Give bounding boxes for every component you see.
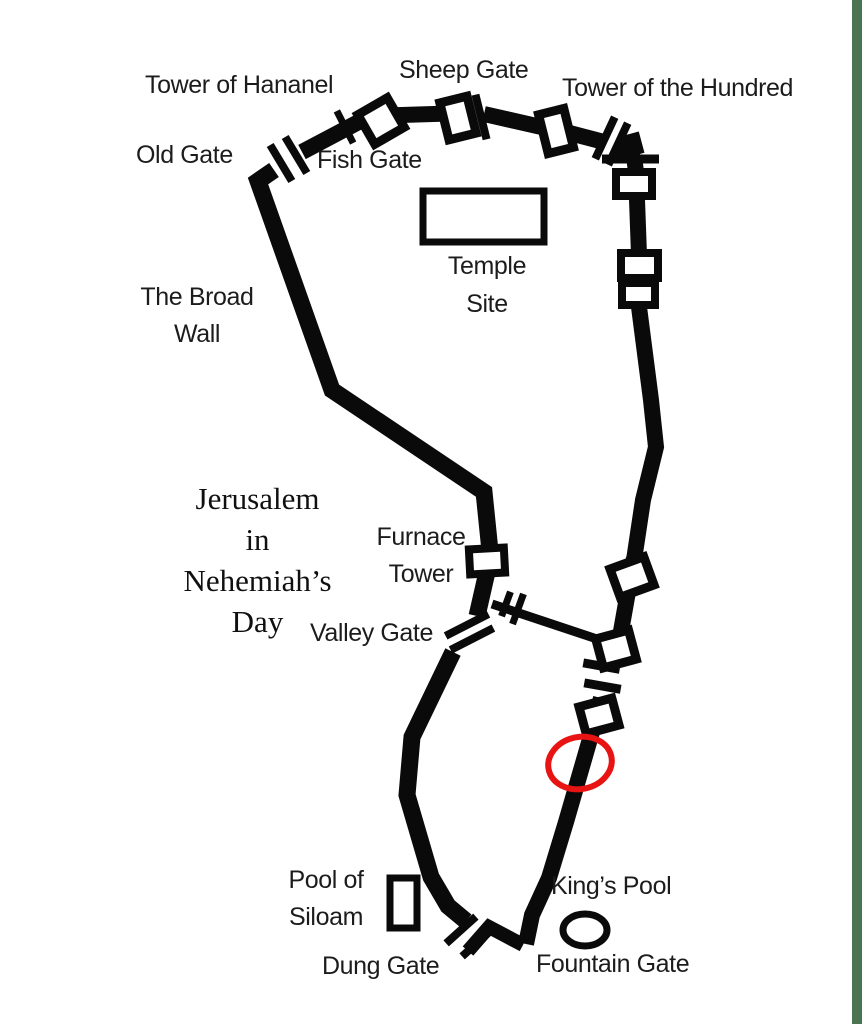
label-broad-wall-line2: Wall	[127, 316, 267, 353]
map-canvas: Tower of Hananel Sheep Gate Tower of the…	[0, 0, 862, 1024]
map-title: Jerusalem in Nehemiah’s Day	[150, 478, 365, 642]
label-kings-pool: King’s Pool	[551, 872, 671, 901]
tower-of-hananel-shape	[358, 98, 404, 144]
label-pool-of-siloam: Pool of Siloam	[262, 862, 390, 936]
label-furnace-tower-line1: Furnace	[356, 519, 486, 556]
label-fish-gate: Fish Gate	[317, 146, 422, 175]
label-furnace-tower-line2: Tower	[356, 556, 486, 593]
label-valley-gate: Valley Gate	[310, 619, 433, 648]
pool-of-siloam-rect	[390, 878, 417, 928]
label-furnace-tower: Furnace Tower	[356, 519, 486, 593]
east-gate-mark	[583, 678, 621, 693]
label-temple-site: Temple Site	[417, 247, 557, 323]
sheep-gate-shape	[440, 96, 476, 140]
east-square-1	[610, 557, 654, 598]
label-old-gate: Old Gate	[136, 141, 233, 170]
label-fountain-gate: Fountain Gate	[536, 950, 689, 979]
inner-cross-wall	[492, 604, 600, 640]
east-tower-2	[621, 253, 658, 278]
label-tower-of-the-hundred: Tower of the Hundred	[562, 74, 793, 103]
east-square-3	[579, 698, 619, 734]
label-the-broad-wall: The Broad Wall	[127, 279, 267, 353]
east-wall-upper	[634, 156, 656, 560]
city-wall-drawing	[0, 0, 862, 1024]
label-sheep-gate: Sheep Gate	[399, 56, 528, 85]
label-tower-of-hananel: Tower of Hananel	[145, 71, 333, 100]
east-square-2	[596, 630, 637, 668]
right-border-strip	[852, 0, 862, 1024]
north-tower-shape	[539, 108, 574, 153]
map-title-line3: Nehemiah’s	[150, 560, 365, 601]
east-tower-1	[616, 172, 652, 196]
temple-site-rect	[423, 191, 544, 242]
east-tower-3	[622, 283, 655, 305]
map-title-line1: Jerusalem	[150, 478, 365, 519]
label-pool-of-siloam-line2: Siloam	[262, 899, 390, 936]
label-pool-of-siloam-line1: Pool of	[262, 862, 390, 899]
label-temple-site-line2: Site	[417, 285, 557, 323]
map-title-line2: in	[150, 519, 365, 560]
label-temple-site-line1: Temple	[417, 247, 557, 285]
kings-pool-ellipse	[563, 914, 607, 946]
label-dung-gate: Dung Gate	[322, 952, 439, 981]
label-broad-wall-line1: The Broad	[127, 279, 267, 316]
